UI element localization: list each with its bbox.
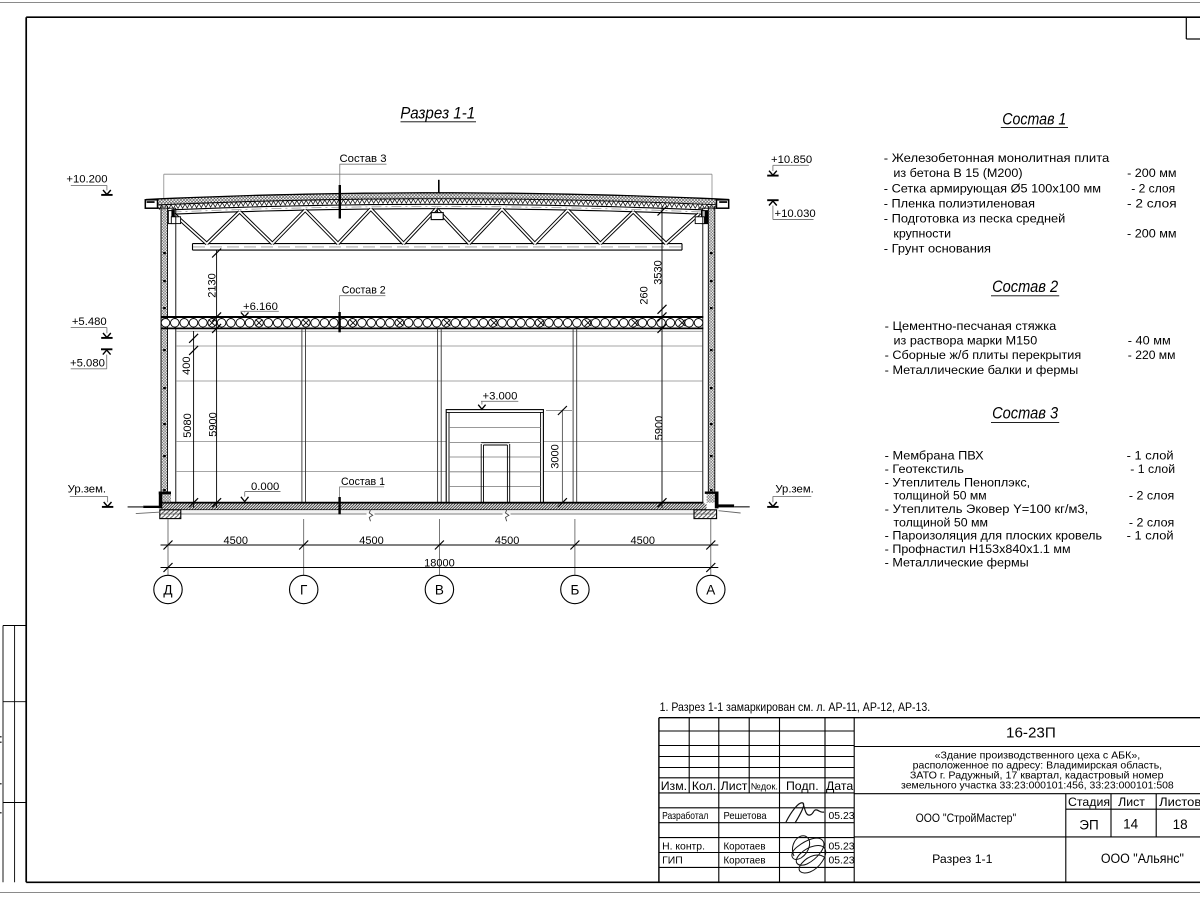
svg-text:Решетова: Решетова — [724, 811, 767, 822]
svg-text:- Подготовка из песка средней: - Подготовка из песка средней — [884, 211, 1066, 225]
svg-text:5080: 5080 — [182, 413, 194, 437]
svg-text:+10.030: +10.030 — [775, 208, 816, 220]
svg-text:4500: 4500 — [224, 535, 248, 547]
svg-text:18: 18 — [1173, 817, 1188, 832]
svg-text:- Цементно-песчаная стяжка: - Цементно-песчаная стяжка — [885, 319, 1057, 333]
svg-text:- Железобетонная монолитная п: - Железобетонная монолитная плита — [884, 151, 1110, 165]
svg-text:ГИП: ГИП — [662, 856, 683, 867]
svg-text:- 2 слоя: - 2 слоя — [1131, 181, 1175, 195]
svg-text:Коротаев: Коротаев — [724, 856, 766, 867]
svg-text:- Грунт основания: - Грунт основания — [884, 241, 991, 255]
svg-text:Б: Б — [570, 582, 579, 597]
svg-text:Стадия: Стадия — [1068, 795, 1110, 809]
svg-text:Ур.зем.: Ур.зем. — [775, 484, 813, 496]
svg-text:Изм.: Изм. — [661, 779, 687, 793]
svg-text:Дата: Дата — [826, 779, 853, 793]
svg-text:из бетона В 15 (М200): из бетона В 15 (М200) — [893, 166, 1022, 180]
svg-text:Коротаев: Коротаев — [724, 842, 766, 853]
svg-text:4500: 4500 — [359, 535, 383, 547]
svg-text:3000: 3000 — [550, 444, 562, 468]
svg-text:2130: 2130 — [207, 273, 219, 297]
svg-text:крупности: крупности — [893, 226, 951, 240]
svg-text:+10.850: +10.850 — [771, 154, 812, 166]
svg-text:- Пароизоляция для плоских кро: - Пароизоляция для плоских кровель — [885, 529, 1102, 543]
svg-text:ЭП: ЭП — [1079, 817, 1098, 832]
svg-text:- 2 слоя: - 2 слоя — [1129, 515, 1174, 529]
svg-text:№док.: №док. — [751, 781, 778, 791]
svg-text:Листов: Листов — [1159, 795, 1200, 809]
svg-text:земельного участка 33:23:00010: земельного участка 33:23:000101:456, 33:… — [901, 780, 1174, 791]
svg-text:18000: 18000 — [424, 557, 455, 569]
svg-text:+5.080: +5.080 — [70, 357, 105, 369]
svg-text:ООО "СтройМастер": ООО "СтройМастер" — [916, 811, 1017, 825]
svg-text:Лист: Лист — [1118, 795, 1145, 809]
svg-text:Состав 3: Состав 3 — [992, 405, 1059, 423]
svg-text:- Мембрана ПВХ: - Мембрана ПВХ — [885, 449, 984, 463]
svg-text:Н. контр.: Н. контр. — [662, 842, 705, 853]
svg-text:Разрез 1-1: Разрез 1-1 — [400, 105, 475, 123]
svg-text:Кол.: Кол. — [692, 779, 716, 793]
svg-text:- Геотекстиль: - Геотекстиль — [885, 462, 964, 476]
svg-text:- 1 слой: - 1 слой — [1127, 449, 1174, 463]
svg-text:5900: 5900 — [208, 412, 220, 436]
svg-text:Состав 3: Состав 3 — [340, 153, 387, 165]
svg-text:4500: 4500 — [495, 535, 519, 547]
svg-text:05.23: 05.23 — [829, 841, 855, 852]
svg-text:16-23П: 16-23П — [1006, 724, 1056, 741]
svg-text:1. Разрез 1-1 замаркирован см.: 1. Разрез 1-1 замаркирован см. л. АР-11,… — [660, 700, 931, 714]
svg-text:толщиной 50 мм: толщиной 50 мм — [894, 489, 987, 503]
svg-text:- Утеплитель Пеноплэкс,: - Утеплитель Пеноплэкс, — [885, 475, 1030, 489]
svg-text:400: 400 — [181, 357, 193, 375]
svg-text:В: В — [435, 582, 444, 597]
svg-text:05.23: 05.23 — [829, 811, 855, 822]
svg-text:- 1 слой: - 1 слой — [1130, 462, 1175, 476]
svg-text:Подп.: Подп. — [786, 779, 819, 793]
svg-text:Состав 1: Состав 1 — [1002, 110, 1066, 128]
svg-text:- 2 слоя: - 2 слоя — [1129, 489, 1174, 503]
svg-text:Состав 2: Состав 2 — [992, 278, 1058, 296]
svg-text:- Сборные ж/б плиты перекрытия: - Сборные ж/б плиты перекрытия — [885, 348, 1081, 362]
svg-text:Д: Д — [163, 582, 172, 597]
svg-text:- Профнастил Н153х840х1.1 мм: - Профнастил Н153х840х1.1 мм — [885, 542, 1071, 556]
svg-text:- Сетка армирующая Ø5 100х100: - Сетка армирующая Ø5 100х100 мм — [884, 181, 1101, 195]
svg-text:толщиной 50 мм: толщиной 50 мм — [894, 515, 989, 529]
svg-text:Г: Г — [300, 582, 308, 597]
svg-text:- Пленка полиэтиленовая: - Пленка полиэтиленовая — [884, 196, 1035, 210]
svg-text:А: А — [706, 582, 715, 597]
svg-text:Разработал: Разработал — [662, 810, 708, 822]
svg-text:- Металлические балки и фермы: - Металлические балки и фермы — [885, 363, 1079, 377]
svg-text:- Утеплитель Эковер Y=100 кг/м: - Утеплитель Эковер Y=100 кг/м3, — [885, 502, 1089, 516]
svg-text:- 200 мм: - 200 мм — [1127, 166, 1177, 180]
svg-text:- 200 мм: - 200 мм — [1127, 226, 1177, 240]
svg-text:+3.000: +3.000 — [483, 391, 518, 403]
svg-text:- 1 слой: - 1 слой — [1127, 529, 1174, 543]
svg-text:Лист: Лист — [721, 779, 748, 793]
svg-text:14: 14 — [1123, 817, 1139, 832]
svg-text:Состав 2: Состав 2 — [342, 285, 386, 297]
svg-text:- 220 мм: - 220 мм — [1128, 348, 1176, 362]
svg-text:Ур.зем.: Ур.зем. — [68, 483, 106, 495]
svg-text:- 40 мм: - 40 мм — [1128, 334, 1171, 348]
svg-text:+10.200: +10.200 — [66, 174, 107, 186]
svg-text:Состав 1: Состав 1 — [341, 476, 385, 488]
svg-text:из раствора марки М150: из раствора марки М150 — [894, 334, 1038, 348]
svg-text:4500: 4500 — [631, 535, 655, 547]
svg-text:3530: 3530 — [653, 260, 665, 284]
svg-text:Разрез 1-1: Разрез 1-1 — [932, 852, 993, 866]
svg-text:ООО "Альянс": ООО "Альянс" — [1101, 851, 1184, 867]
svg-text:- 2 слоя: - 2 слоя — [1127, 196, 1177, 210]
svg-text:05.23: 05.23 — [829, 855, 855, 866]
svg-text:- Металлические фермы: - Металлические фермы — [885, 555, 1029, 569]
svg-text:5900: 5900 — [654, 416, 666, 440]
svg-text:+5.480: +5.480 — [72, 316, 107, 328]
svg-text:260: 260 — [639, 286, 651, 304]
